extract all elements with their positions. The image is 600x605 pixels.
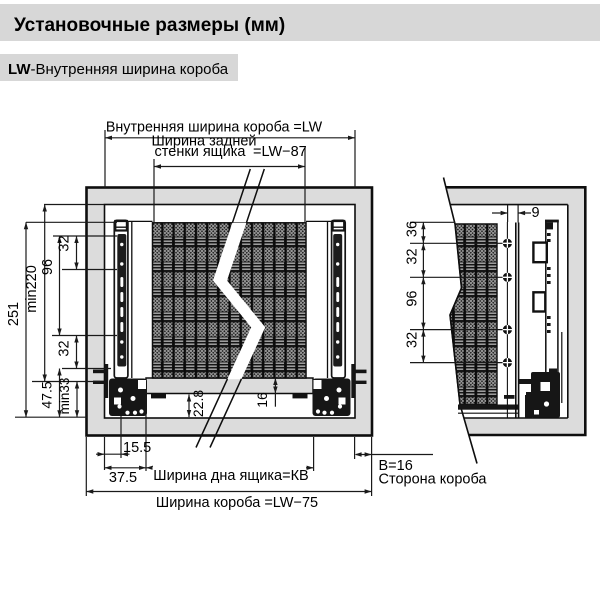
- svg-text:22.8: 22.8: [190, 390, 206, 417]
- svg-text:16: 16: [254, 392, 270, 408]
- svg-text:32: 32: [57, 235, 73, 251]
- svg-text:36: 36: [405, 221, 421, 237]
- svg-text:=LW−87: =LW−87: [253, 144, 307, 160]
- svg-text:32: 32: [405, 332, 421, 348]
- svg-text:LW-Внутренняя ширина короба: LW-Внутренняя ширина короба: [8, 61, 229, 78]
- svg-text:32: 32: [405, 248, 421, 264]
- svg-text:32: 32: [57, 340, 73, 356]
- svg-text:47.5: 47.5: [38, 381, 54, 408]
- svg-text:37.5: 37.5: [109, 470, 137, 486]
- svg-text:15.5: 15.5: [123, 440, 151, 456]
- svg-text:9: 9: [532, 205, 540, 221]
- svg-text:96: 96: [40, 259, 56, 275]
- svg-text:Ширина короба =LW−75: Ширина короба =LW−75: [156, 495, 318, 511]
- svg-text:96: 96: [405, 291, 421, 307]
- svg-text:min33: min33: [57, 378, 72, 415]
- svg-text:Установочные размеры (мм): Установочные размеры (мм): [14, 15, 285, 36]
- svg-text:Сторона короба: Сторона короба: [379, 472, 488, 488]
- svg-text:251: 251: [6, 302, 22, 326]
- svg-text:Ширина дна ящика=КВ: Ширина дна ящика=КВ: [153, 468, 308, 484]
- svg-text:стенки ящика: стенки ящика: [155, 144, 247, 160]
- svg-text:min220: min220: [24, 265, 40, 313]
